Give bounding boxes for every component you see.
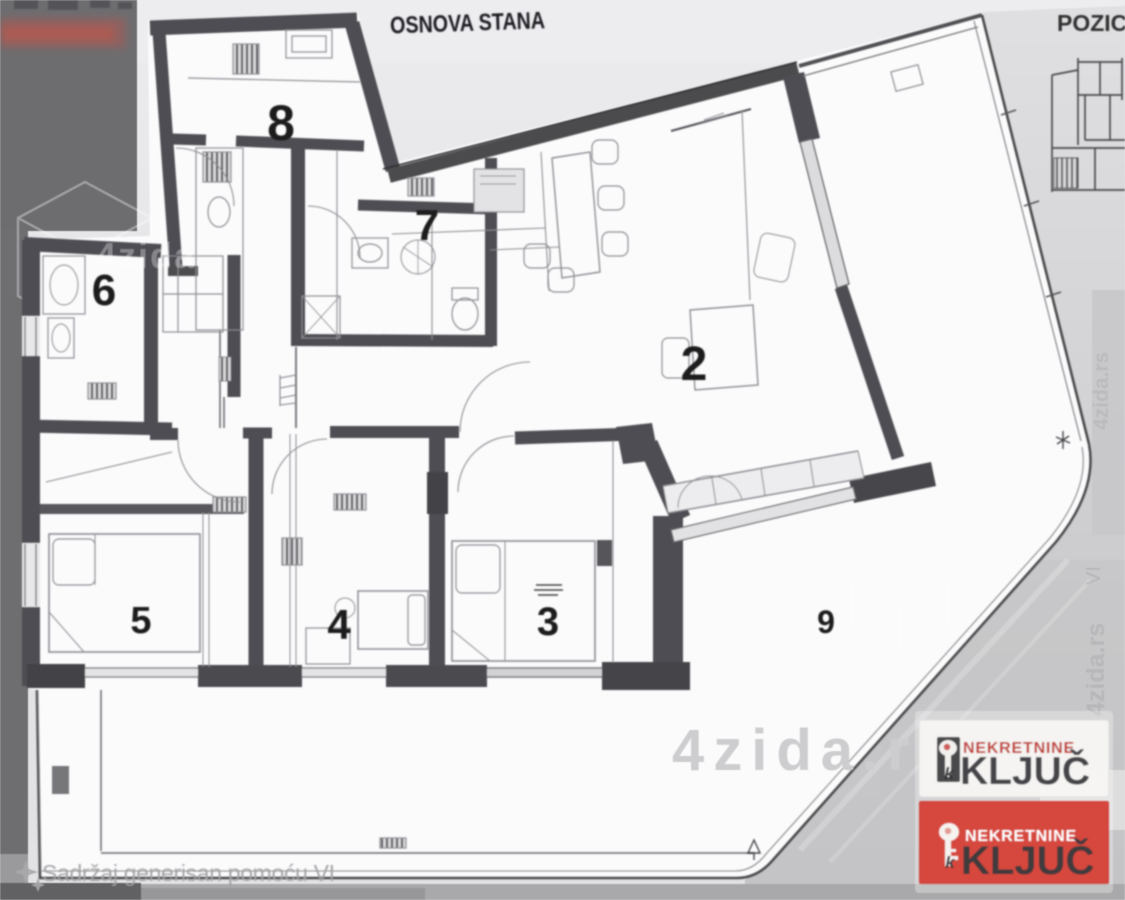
svg-text:9: 9 <box>817 604 835 640</box>
svg-text:5: 5 <box>130 600 151 642</box>
svg-text:Sadržaj generisan pomoću VI: Sadržaj generisan pomoću VI <box>42 860 335 886</box>
svg-text:KLJUČ: KLJUČ <box>961 837 1094 883</box>
svg-text:KLJUČ: KLJUČ <box>960 748 1090 793</box>
svg-text:4: 4 <box>327 601 351 648</box>
svg-text:k: k <box>945 853 956 872</box>
svg-text:OSNOVA STANA: OSNOVA STANA <box>390 7 546 39</box>
svg-text:4zida: 4zida <box>96 235 196 276</box>
svg-text:4zida.rs: 4zida.rs <box>1090 352 1113 430</box>
svg-text:3: 3 <box>537 600 559 644</box>
svg-text:8: 8 <box>267 95 295 151</box>
svg-text:2: 2 <box>681 338 708 391</box>
svg-text:VI: VI <box>1083 566 1105 585</box>
svg-text:4zida.rs: 4zida.rs <box>1082 623 1110 716</box>
svg-text:POZICIJA: POZICIJA <box>1057 10 1125 36</box>
svg-text:7: 7 <box>415 201 439 250</box>
svg-text:k: k <box>944 764 955 783</box>
